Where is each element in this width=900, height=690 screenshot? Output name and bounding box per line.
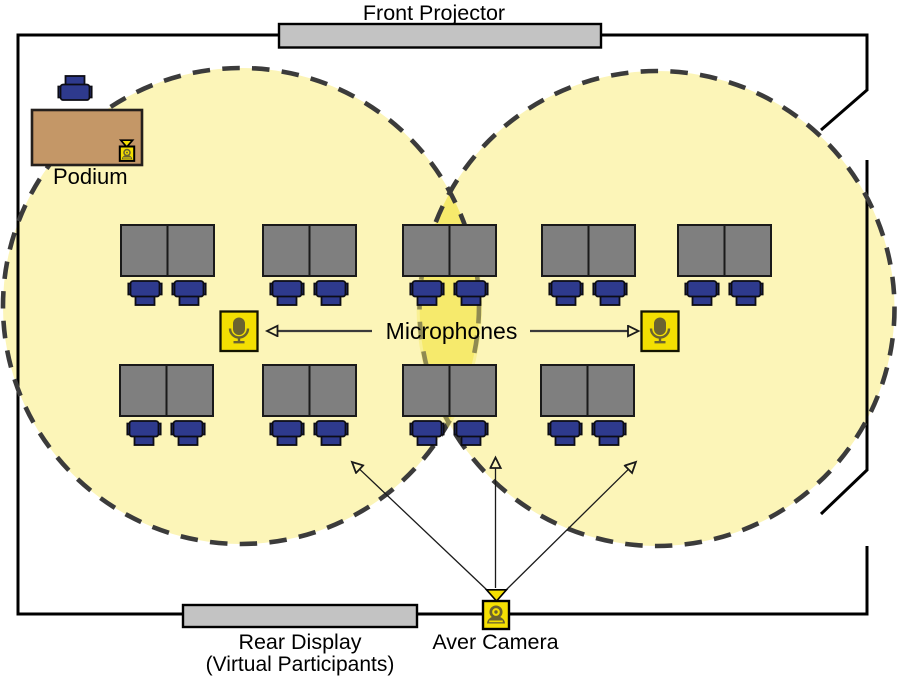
svg-text:Aver Camera: Aver Camera [432, 630, 558, 654]
svg-text:Front Projector: Front Projector [363, 1, 505, 25]
svg-text:(Virtual Participants): (Virtual Participants) [206, 653, 395, 676]
svg-text:Microphones: Microphones [386, 318, 518, 344]
svg-text:Podium: Podium [53, 164, 128, 189]
svg-text:Rear Display: Rear Display [238, 630, 361, 654]
